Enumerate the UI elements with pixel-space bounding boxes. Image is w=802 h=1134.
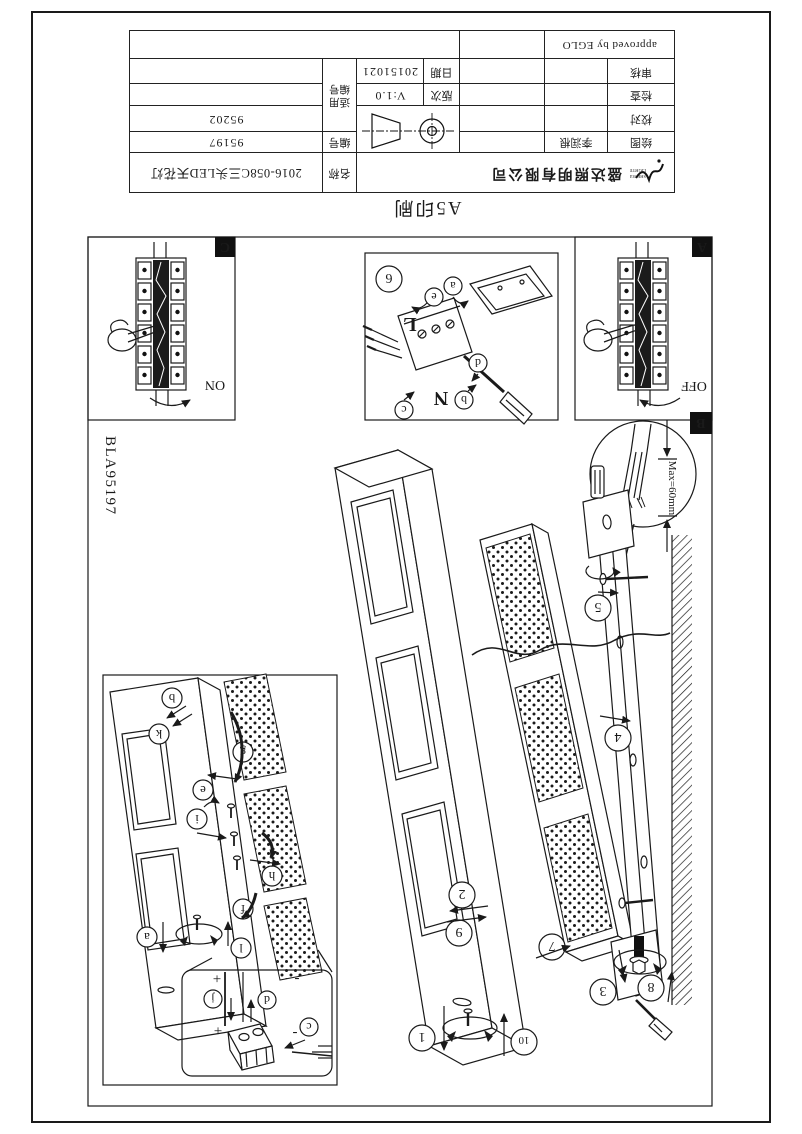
applicable-number: 95202 [130,106,323,132]
projection-symbol-icon [358,110,458,152]
projection-symbol-cell [357,106,460,153]
panel-c: C [88,237,235,420]
manual-page: C [0,0,802,1134]
substep-b: b [461,393,467,407]
polarity-minus: - [293,1025,298,1041]
step-9: 9 [456,924,463,939]
applicable-label: 适用编号 [323,59,357,132]
step-1: 1 [419,1029,426,1044]
rotate-off-arrow [640,398,680,406]
substep-a: a [450,279,456,293]
empty-cell [545,106,608,132]
empty-cell [460,31,545,59]
empty-cell [130,31,460,59]
title-block-table: SHENGDA LIGHTING 盛达照明有限公司 名称 2016-058C三头… [129,30,675,193]
push-connector-icon [228,1024,274,1070]
panel-c-label: C [220,239,230,254]
empty-cell [460,132,545,153]
breaker-strip-icon [618,242,668,406]
logo-line2: LIGHTING [630,169,646,174]
cable-end-icon [292,1046,332,1058]
company-cell: SHENGDA LIGHTING 盛达照明有限公司 [357,153,675,193]
step-6: 6 [386,270,393,285]
empty-cell [460,84,545,106]
version-value: V:1.0 [357,84,424,106]
sign-draw-label: 绘图 [608,132,675,153]
substep-a: a [144,930,150,945]
inset-detail-box: b k g e i h f a [103,674,337,1085]
max-dimension-label: Max=60mm [666,461,678,516]
hex-nut-icon [633,960,645,974]
polarity-plus: + [214,1022,222,1038]
step-4: 4 [615,729,622,744]
step-3: 3 [600,983,607,998]
substep-b: b [169,691,176,706]
empty-cell [460,106,545,132]
substep-c: c [306,1020,311,1034]
switch-off-label: OFF [681,378,707,393]
terminal-cover-icon [470,266,552,314]
sign-proof-label: 校对 [608,106,675,132]
neutral-label: N [433,387,448,409]
polarity-plus: + [213,970,221,986]
sign-check-label: 检查 [608,84,675,106]
panel-a-label: A [696,239,707,254]
substep-h: h [268,869,275,884]
empty-cell [545,84,608,106]
product-name: 2016-058C三头LED天花灯 [130,153,323,193]
version-label: 版次 [424,84,460,106]
screwdriver-icon [636,1000,672,1040]
empty-cell [130,59,323,84]
substep-i: i [195,812,199,827]
drawing-code: BLA95197 [102,436,118,516]
panel-b-label: B [696,415,705,430]
wiring-detail-box: 6 L N a e [363,253,558,424]
empty-cell [130,84,323,106]
inset-led-board-1 [224,674,286,780]
company-name: 盛达照明有限公司 [490,164,622,181]
mounting-stud-top [591,466,604,498]
substep-k: k [155,727,162,742]
wall-hatch [672,535,692,1005]
substep-d: d [264,993,270,1007]
substep-j: j [211,992,215,1006]
polarity-minus: - [295,971,300,987]
logo-line1: SHENGDA [630,175,646,180]
empty-cell [460,59,545,84]
inset-led-board-3 [264,898,322,980]
step-5: 5 [595,599,602,614]
empty-cell [545,59,608,84]
panel-a: A [575,237,712,420]
substep-c: c [401,403,406,417]
print-size-label: A5印刷 [362,196,492,223]
step-2: 2 [459,886,466,901]
approved-by: approved by EGLO [545,31,675,59]
date-label: 日期 [424,59,460,84]
drafter-name: 李润根 [545,132,608,153]
product-name-label: 名称 [323,153,357,193]
number-value: 95197 [130,132,323,153]
substep-l: l [239,941,243,956]
step-7: 7 [549,938,556,953]
step-8: 8 [648,979,655,994]
company-logo-icon: SHENGDA LIGHTING [630,159,666,187]
sign-review-label: 审核 [608,59,675,84]
substep-e: e [200,783,206,798]
wires-icon [363,326,402,358]
number-label: 编号 [323,132,357,153]
date-value: 20151021 [357,59,424,84]
title-block: SHENGDA LIGHTING 盛达照明有限公司 名称 2016-058C三头… [130,35,675,193]
substep-e: e [431,290,436,304]
substep-d: d [475,356,481,370]
breaker-strip-icon [136,242,186,406]
switch-on-label: ON [205,377,225,392]
step-10: 10 [518,1034,530,1046]
live-label: L [403,313,416,335]
